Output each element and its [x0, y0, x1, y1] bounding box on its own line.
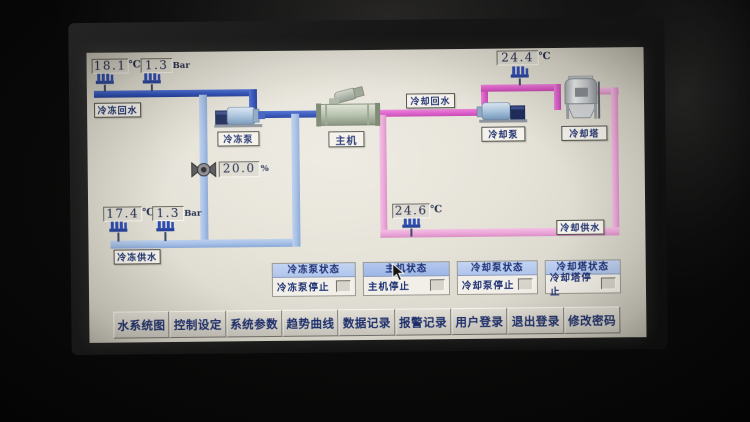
- menu-user-login[interactable]: 用户登录: [451, 308, 508, 336]
- chilled-return-temp-display: 18.1: [92, 58, 129, 73]
- cooling-supply-label: 冷却供水: [556, 220, 604, 236]
- chilled-supply-pressure-display: 1.3: [152, 206, 184, 221]
- chilled-pump-status-panel: 冷冻泵状态 冷冻泵停止: [272, 262, 356, 297]
- percent-unit: %: [261, 164, 269, 174]
- status-indicator: [336, 280, 351, 292]
- sensor-stub: [151, 84, 153, 91]
- temp-unit: ℃: [430, 204, 442, 215]
- pressure-unit: Bar: [184, 209, 201, 219]
- status-text: 冷却泵停止: [462, 277, 515, 292]
- cooling-supply-riser: [379, 115, 387, 230]
- chilled-return-pipe: [94, 89, 257, 98]
- cooling-tower-icon: [561, 76, 603, 122]
- mouse-cursor-icon: [392, 263, 405, 282]
- cooling-return-label: 冷却回水: [406, 93, 455, 109]
- chiller-icon: [315, 86, 381, 131]
- cooling-return-pipe: [375, 109, 478, 117]
- sensor-stub: [117, 233, 119, 242]
- temp-unit: ℃: [129, 59, 141, 70]
- cooling-pump-icon: [476, 99, 530, 125]
- sensor-stub: [104, 85, 106, 92]
- sensor-stub: [164, 232, 166, 241]
- panel-title: 冷冻泵状态: [273, 263, 355, 278]
- pump-to-tower-pipe: [481, 84, 561, 92]
- temperature-sensor-icon: [511, 66, 529, 78]
- chilled-return-pressure-display: 1.3: [141, 58, 173, 73]
- cooling-supply-temp-display: 24.6: [392, 203, 430, 218]
- status-indicator: [601, 277, 616, 289]
- panel-title: 主机状态: [364, 262, 449, 277]
- cooling-tower-label: 冷却塔: [561, 125, 607, 140]
- chilled-supply-riser-2: [291, 114, 300, 247]
- cooling-supply-downcomer: [611, 87, 620, 235]
- pressure-sensor-icon: [143, 72, 161, 84]
- bottom-menu-bar: 水系统图 控制设定 系统参数 趋势曲线 数据记录 报警记录 用户登录 退出登录 …: [113, 306, 620, 338]
- temperature-sensor-icon: [109, 221, 127, 233]
- menu-logout[interactable]: 退出登录: [507, 307, 564, 335]
- cooling-tower-status-panel: 冷却塔状态 冷却塔停止: [545, 259, 621, 294]
- sensor-stub: [519, 78, 521, 85]
- temperature-sensor-icon: [96, 73, 114, 85]
- valve-icon: [191, 159, 217, 181]
- temp-unit: ℃: [539, 51, 551, 62]
- chiller-label: 主机: [328, 131, 364, 147]
- valve-opening-display: 20.0: [219, 161, 260, 177]
- status-text: 冷冻泵停止: [277, 279, 330, 294]
- menu-system-parameters[interactable]: 系统参数: [226, 310, 283, 338]
- sensor-stub: [410, 229, 412, 237]
- chilled-return-label: 冷冻回水: [94, 102, 141, 117]
- chilled-pump-icon: [212, 103, 266, 130]
- chilled-pump-label: 冷冻泵: [217, 131, 259, 146]
- panel-title: 冷却泵状态: [458, 261, 537, 276]
- menu-data-records[interactable]: 数据记录: [339, 309, 396, 337]
- menu-water-system-diagram[interactable]: 水系统图: [113, 311, 170, 339]
- cooling-return-temp-display: 24.4: [496, 50, 538, 65]
- pressure-unit: Bar: [173, 61, 190, 71]
- pressure-sensor-icon: [156, 220, 174, 232]
- menu-change-password[interactable]: 修改密码: [564, 306, 621, 334]
- chiller-status-panel: 主机状态 主机停止: [363, 261, 450, 296]
- chilled-supply-pipe: [110, 239, 300, 249]
- photo-background: 18.1 ℃ 1.3 Bar 17.4 ℃ 1.3 Bar 20.0 % 24.…: [0, 0, 750, 422]
- menu-control-settings[interactable]: 控制设定: [170, 310, 227, 338]
- menu-trend-curves[interactable]: 趋势曲线: [282, 309, 339, 337]
- hmi-screen: 18.1 ℃ 1.3 Bar 17.4 ℃ 1.3 Bar 20.0 % 24.…: [86, 47, 646, 343]
- cooling-pump-status-panel: 冷却泵状态 冷却泵停止: [457, 260, 538, 295]
- cooling-pump-label: 冷却泵: [481, 126, 525, 141]
- status-indicator: [430, 279, 445, 291]
- chilled-supply-temp-display: 17.4: [103, 206, 142, 221]
- menu-alarm-records[interactable]: 报警记录: [395, 308, 452, 336]
- status-text: 冷却塔停止: [550, 270, 602, 299]
- status-indicator: [518, 278, 533, 290]
- chilled-supply-label: 冷冻供水: [114, 249, 161, 264]
